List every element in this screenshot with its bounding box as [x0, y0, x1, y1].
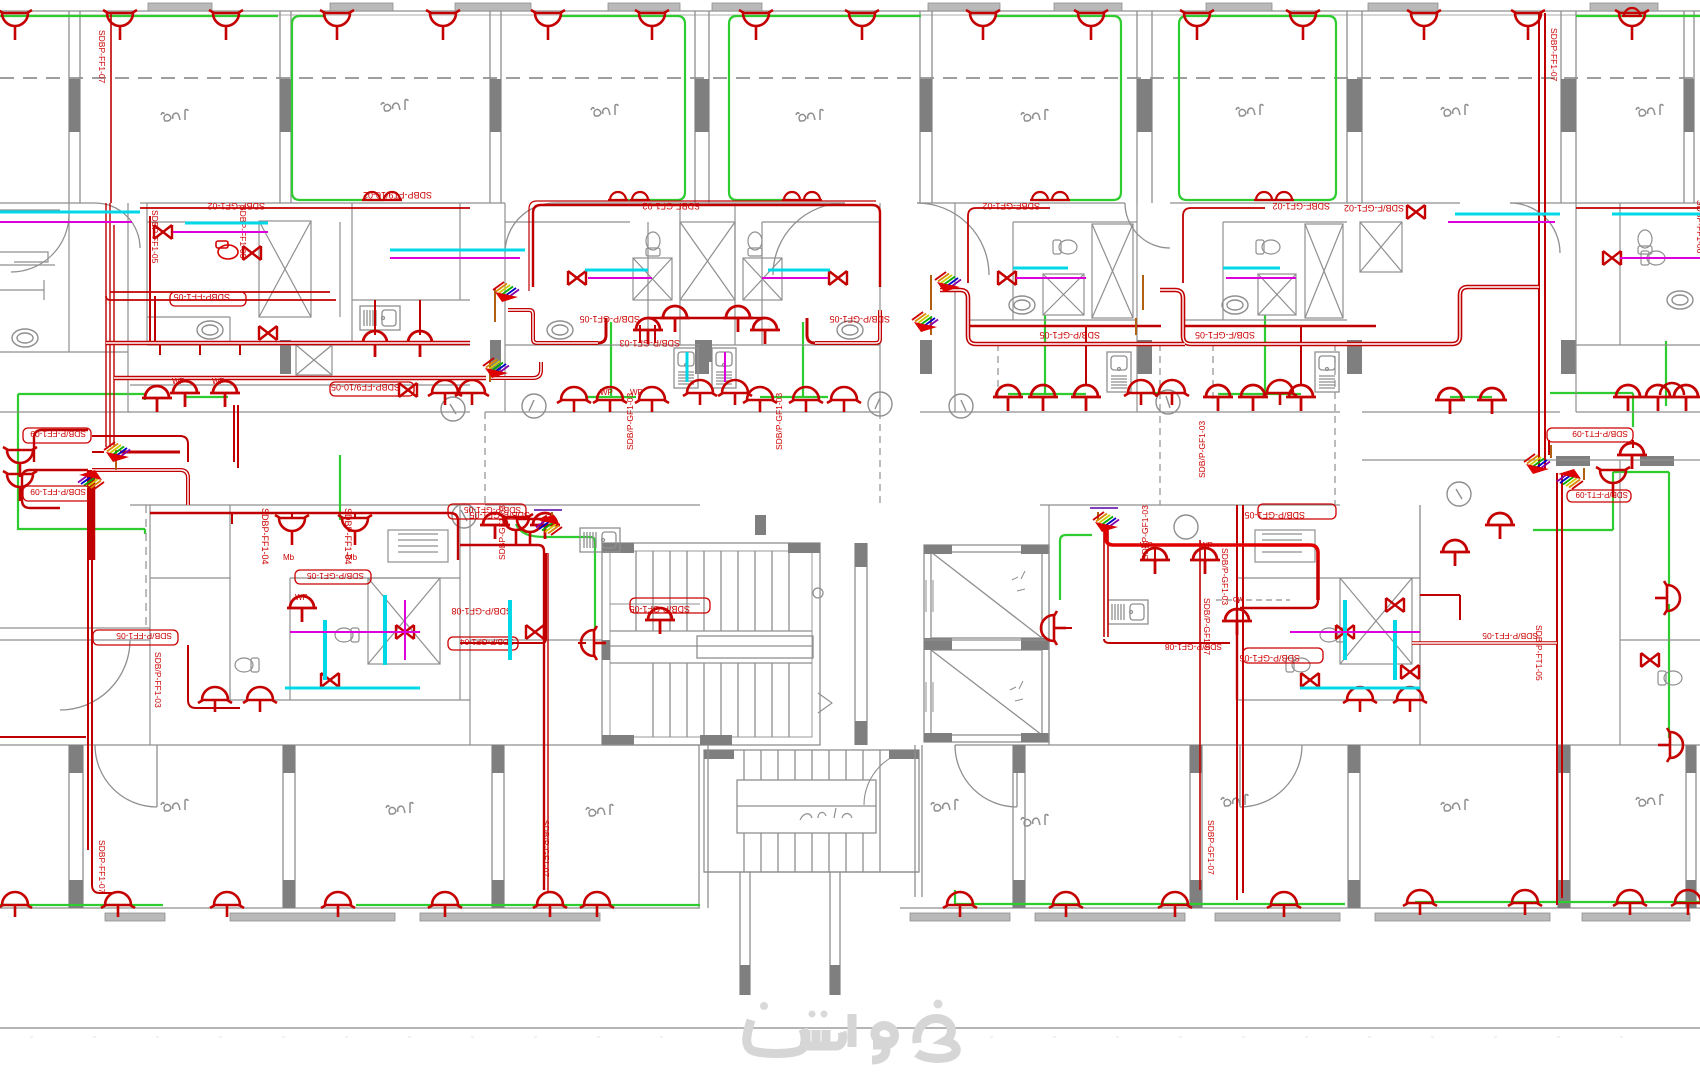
svg-text:WP: WP: [172, 377, 185, 386]
svg-text:SDB/F-GF1-05: SDB/F-GF1-05: [1195, 330, 1255, 340]
svg-text:SDBF-GF1-02: SDBF-GF1-02: [207, 201, 265, 211]
svg-text:Mb: Mb: [346, 553, 358, 562]
svg-text:SDB/P-GF1-03: SDB/P-GF1-03: [774, 393, 784, 450]
svg-text:SDB/P-GF1-05: SDB/P-GF1-05: [1039, 330, 1100, 340]
svg-text:SDB/P-GF1-03: SDB/P-GF1-03: [619, 338, 680, 348]
svg-text:SDBP-FT9/10-02: SDBP-FT9/10-02: [363, 190, 432, 200]
svg-text:SDB/P-FT1-09: SDB/P-FT1-09: [1575, 490, 1628, 499]
svg-text:SDB/P-GF1-05: SDB/P-GF1-05: [829, 314, 890, 324]
svg-text:SDBP-GF1-07: SDBP-GF1-07: [1206, 820, 1216, 875]
svg-text:SDBP-FF1-04: SDBP-FF1-04: [260, 508, 270, 565]
svg-text:Mb: Mb: [283, 553, 295, 562]
svg-text:SDB/P-GF1-03: SDB/P-GF1-03: [625, 393, 635, 450]
svg-text:SDB/P-GF1-05: SDB/P-GF1-05: [307, 571, 364, 581]
svg-text:SDB/P-GF1-04: SDB/P-GF1-04: [460, 637, 514, 646]
svg-text:SDBF-GF1-02: SDBF-GF1-02: [982, 201, 1040, 211]
svg-text:SDBP-FF1-05: SDBP-FF1-05: [173, 292, 230, 302]
svg-text:SDB/P-GF1-08: SDB/P-GF1-08: [451, 606, 512, 616]
svg-text:SDBP-FF1-06: SDBP-FF1-06: [1695, 200, 1700, 254]
svg-text:SDB/P-FF1-05: SDB/P-FF1-05: [116, 631, 172, 641]
svg-text:SDB/P-FF1-05: SDB/P-FF1-05: [1482, 631, 1538, 641]
svg-text:SDBP-FF1-07: SDBP-FF1-07: [1549, 28, 1559, 82]
svg-text:SDBP-GF1-03: SDBP-GF1-03: [1140, 505, 1150, 560]
svg-text:WP: WP: [630, 388, 643, 397]
svg-text:SDBP-FF9/10-05: SDBP-FF9/10-05: [331, 382, 400, 392]
svg-text:SDB/P-FF1-09: SDB/P-FF1-09: [30, 429, 86, 439]
svg-text:WP: WP: [1140, 541, 1153, 550]
svg-text:WP: WP: [212, 377, 225, 386]
svg-text:SDB/P-GF1-06: SDB/P-GF1-06: [1239, 653, 1300, 663]
svg-text:SDB/F-GF1-02: SDB/F-GF1-02: [1344, 203, 1404, 213]
svg-text:SDB/P-FT1-09: SDB/P-FT1-09: [1572, 429, 1628, 439]
svg-text:SDB/P-GF1-03: SDB/P-GF1-03: [1197, 421, 1207, 478]
svg-text:SDB/P-GF1-07: SDB/P-GF1-07: [1202, 598, 1212, 655]
svg-text:SDB/P-FF1-03: SDB/P-FF1-03: [153, 652, 163, 708]
svg-text:SDBP-FF1-07: SDBP-FF1-07: [97, 840, 107, 894]
svg-text:WP: WP: [1200, 541, 1213, 550]
svg-text:SDBF-GF1-02: SDBF-GF1-02: [642, 201, 700, 211]
svg-text:Mb: Mb: [1232, 595, 1244, 604]
svg-text:SDBP-FF1-07: SDBP-FF1-07: [97, 30, 107, 84]
svg-text:SDB/P-GF1-03: SDB/P-GF1-03: [1220, 548, 1230, 605]
svg-text:SDB/P-GF1-08: SDB/P-GF1-08: [1165, 642, 1222, 652]
svg-text:SDB/P-GF1-05: SDB/P-GF1-05: [464, 505, 521, 515]
svg-text:SDB/P-FF1-09: SDB/P-FF1-09: [30, 487, 86, 497]
svg-text:SDB/P-GF1-07: SDB/P-GF1-07: [541, 820, 551, 877]
svg-text:SDBP-FF1-05: SDBP-FF1-05: [150, 210, 160, 264]
svg-text:WP: WP: [600, 388, 613, 397]
svg-text:WP: WP: [295, 593, 308, 602]
svg-text:SDBF-GF1-02: SDBF-GF1-02: [1272, 201, 1330, 211]
svg-text:SDB/P-GF1-05: SDB/P-GF1-05: [579, 314, 640, 324]
